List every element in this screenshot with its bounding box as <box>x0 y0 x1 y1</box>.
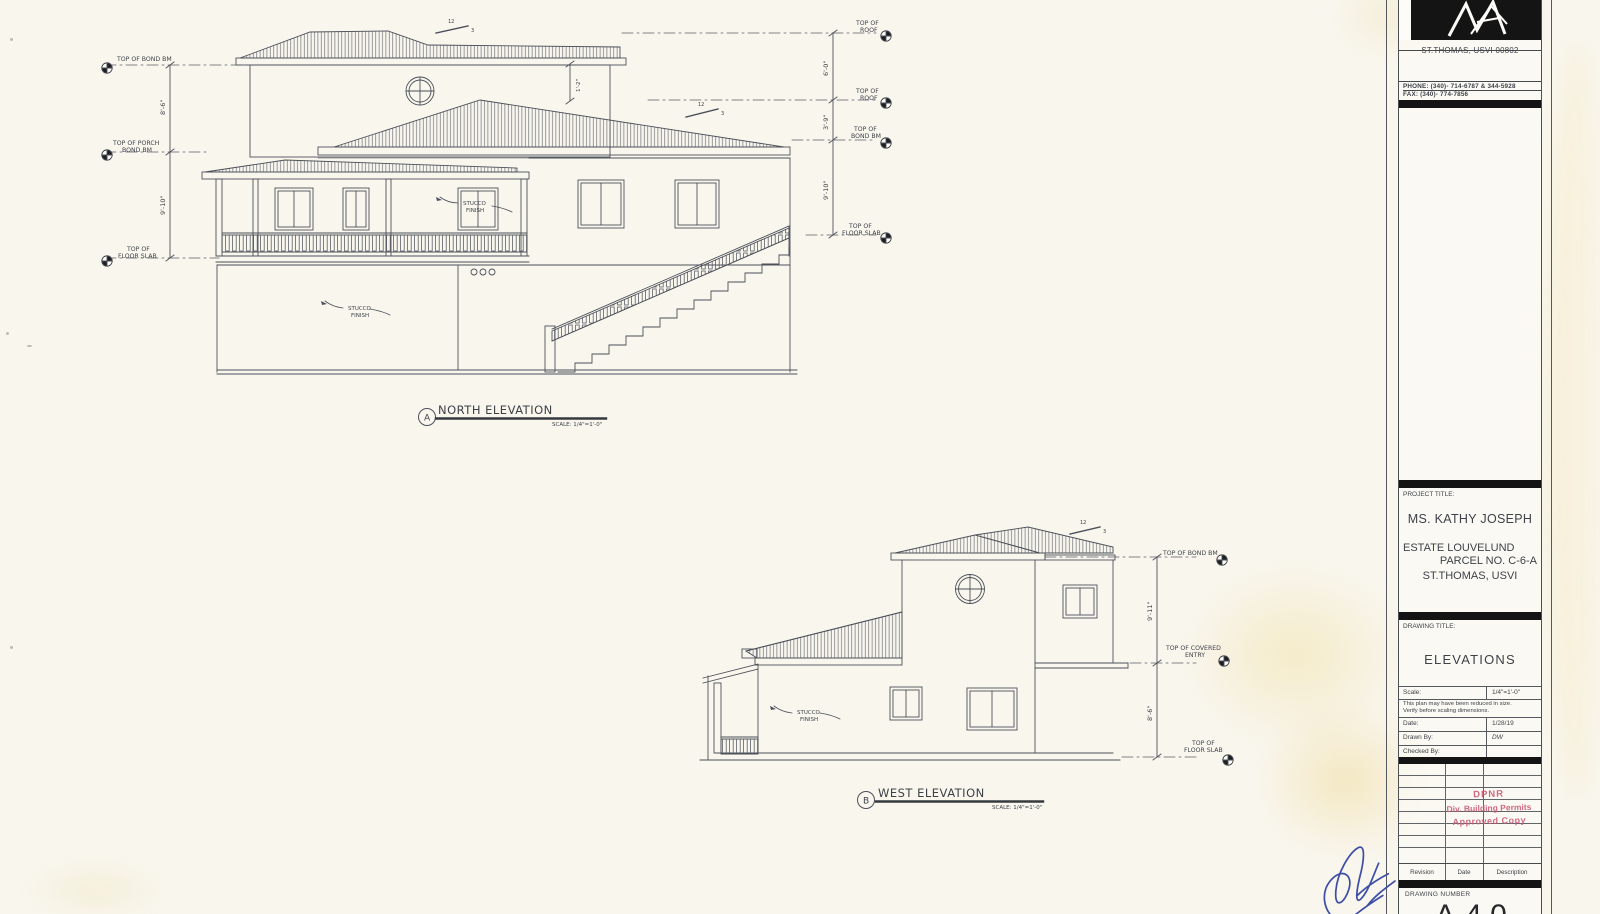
north-upper-roof: 12 3 <box>236 19 626 65</box>
date-label: Date: <box>1399 718 1486 731</box>
slope-rise: 12 <box>698 102 704 108</box>
drawn-by-value: DW <box>1486 732 1541 745</box>
drawn-by-label: Drawn By: <box>1399 732 1486 745</box>
north-main-roof: 12 3 <box>318 100 790 158</box>
west-main-mass <box>700 612 1120 760</box>
date-value: 1/28/19 <box>1486 718 1541 731</box>
svg-text:TOP OF PORCH: TOP OF PORCH <box>112 140 160 147</box>
firm-blank-box <box>1399 51 1541 82</box>
dim-label: 3'-9" <box>822 115 830 130</box>
revision-table: Revision Date Description DPNR Div. Buil… <box>1399 764 1541 880</box>
west-datum-labels: TOP OF BOND BM TOP OF COVERED ENTRY TOP … <box>1162 550 1223 754</box>
west-datum-lines <box>1045 557 1196 757</box>
divider-bar <box>1399 757 1541 764</box>
north-left-dimension: 8'-6" 9'-10" <box>159 62 174 261</box>
divider-bar <box>1399 100 1541 108</box>
window <box>578 180 624 228</box>
title-block: ST.THOMAS, USVI 00802 PHONE: (340)- 714-… <box>1398 0 1542 914</box>
scanned-sheet: 8'-6" 9'-10" 6'-0" 3'-9" 9'-10" <box>0 0 1600 914</box>
window <box>675 180 719 228</box>
revision-row <box>1399 847 1541 859</box>
slope-run: 3 <box>471 28 474 34</box>
client-name: MS. KATHY JOSEPH <box>1403 512 1537 526</box>
ridge-height-dim: 1'-2" <box>566 61 582 104</box>
svg-text:TOP OF: TOP OF <box>855 88 879 95</box>
svg-text:TOP OF COVERED: TOP OF COVERED <box>1165 645 1221 652</box>
svg-text:FINISH: FINISH <box>800 717 818 723</box>
svg-text:TOP OF: TOP OF <box>853 126 877 133</box>
north-title: A NORTH ELEVATION SCALE: 1/4"=1'-0" <box>419 403 607 428</box>
svg-text:TOP OF: TOP OF <box>1191 740 1215 747</box>
svg-text:FLOOR SLAB: FLOOR SLAB <box>118 253 157 260</box>
revision-row <box>1399 835 1541 847</box>
svg-text:FINISH: FINISH <box>351 313 369 319</box>
revision-row <box>1399 764 1541 775</box>
scale-value: 1/4"=1'-0" <box>1486 687 1541 699</box>
elevation-title: WEST ELEVATION <box>878 786 985 800</box>
firm-logo-box <box>1399 0 1541 40</box>
firm-address-row: ST.THOMAS, USVI 00802 <box>1399 40 1541 51</box>
svg-text:STUCCO: STUCCO <box>797 710 821 716</box>
divider-bar <box>1399 612 1541 620</box>
dim-label: 8'-6" <box>159 100 167 115</box>
svg-text:BOND BM: BOND BM <box>851 133 881 140</box>
slope-run: 3 <box>1103 529 1106 535</box>
divider-bar <box>1399 480 1541 488</box>
west-stucco-label: STUCCO FINISH <box>770 706 840 723</box>
svg-text:FINISH: FINISH <box>466 208 484 214</box>
project-location: ST.THOMAS, USVI <box>1403 570 1537 582</box>
drawing-title: ELEVATIONS <box>1403 652 1537 667</box>
firm-contact: PHONE: (340)- 714-6787 & 344-5928 FAX: (… <box>1399 82 1541 100</box>
svg-text:STUCCO: STUCCO <box>463 201 487 207</box>
balustrade <box>222 233 527 252</box>
datum-symbols-north <box>102 31 891 266</box>
window <box>1063 585 1097 618</box>
scale-label: Scale: <box>1399 687 1486 699</box>
project-title-section: PROJECT TITLE: MS. KATHY JOSEPH ESTATE L… <box>1399 488 1541 612</box>
north-lower-level <box>217 265 797 374</box>
reduction-note-1: This plan may have been reduced in size. <box>1403 701 1541 708</box>
architect-info-box <box>1399 108 1541 480</box>
window <box>275 188 313 230</box>
north-porch-roof <box>202 160 529 179</box>
west-elevation-drawing: 9'-11" 8'-6" TOP OF BOND BM TOP OF COVER… <box>700 520 1233 811</box>
svg-text:ROOF: ROOF <box>860 95 878 102</box>
round-window <box>956 575 985 604</box>
svg-text:TOP OF: TOP OF <box>126 246 150 253</box>
parcel-number: PARCEL NO. C-6-A <box>1403 555 1537 567</box>
slope-rise: 12 <box>1080 520 1086 526</box>
dpnr-approval-stamp: DPNR Div. Building Permits Approved Copy <box>1428 786 1549 830</box>
window <box>967 688 1017 730</box>
west-title: B WEST ELEVATION SCALE: 1/4"=1'-0" <box>858 786 1044 811</box>
title-block-outer-border-right <box>1551 0 1552 914</box>
title-block-outer-border-left <box>1386 0 1387 914</box>
window <box>343 188 369 230</box>
dim-label: 9'-10" <box>159 195 167 215</box>
svg-text:STUCCO: STUCCO <box>348 306 372 312</box>
west-porch <box>703 664 758 760</box>
svg-text:ROOF: ROOF <box>860 27 878 34</box>
info-table: Scale: 1/4"=1'-0" This plan may have bee… <box>1399 686 1541 757</box>
estate-name: ESTATE LOUVELUND <box>1403 542 1537 554</box>
firm-logo-monogram <box>1411 0 1541 40</box>
svg-text:FLOOR SLAB: FLOOR SLAB <box>1184 747 1223 754</box>
revision-header-row: Revision Date Description <box>1399 863 1541 880</box>
elevation-drawings: 8'-6" 9'-10" 6'-0" 3'-9" 9'-10" <box>0 0 1390 914</box>
firm-fax: FAX: (340)- 774-7856 <box>1403 91 1541 98</box>
svg-text:ENTRY: ENTRY <box>1185 652 1205 659</box>
svg-text:TOP OF BOND BM: TOP OF BOND BM <box>1162 550 1218 557</box>
dim-label: 6'-0" <box>822 61 830 76</box>
svg-text:TOP OF: TOP OF <box>855 20 879 27</box>
dim-label: 9'-10" <box>822 180 830 200</box>
svg-text:BOND BM: BOND BM <box>122 147 152 154</box>
north-stair <box>545 226 789 372</box>
svg-text:TOP OF: TOP OF <box>848 223 872 230</box>
datum-symbols-west <box>1217 555 1233 765</box>
west-dimension: 9'-11" 8'-6" <box>1146 554 1161 760</box>
vent-circles <box>471 269 495 275</box>
elevation-tag: B <box>863 797 869 807</box>
drawing-title-label: DRAWING TITLE: <box>1403 623 1537 630</box>
north-elevation-drawing: 8'-6" 9'-10" 6'-0" 3'-9" 9'-10" <box>102 19 891 428</box>
svg-text:TOP OF BOND BM: TOP OF BOND BM <box>116 56 172 63</box>
window <box>890 687 922 720</box>
drawing-title-section: DRAWING TITLE: ELEVATIONS <box>1399 620 1541 686</box>
dim-label: 8'-6" <box>1146 706 1154 721</box>
elevation-scale: SCALE: 1/4"=1'-0" <box>992 805 1042 811</box>
balustrade <box>721 737 758 754</box>
slope-rise: 12 <box>448 19 454 25</box>
north-right-dimension: 6'-0" 3'-9" 9'-10" <box>822 30 837 238</box>
north-porch <box>216 179 529 262</box>
elevation-scale: SCALE: 1/4"=1'-0" <box>552 422 602 428</box>
round-window <box>406 77 434 105</box>
elevation-title: NORTH ELEVATION <box>438 403 553 417</box>
slope-run: 3 <box>721 111 724 117</box>
revision-row <box>1399 775 1541 787</box>
revision-header: Description <box>1483 869 1541 876</box>
west-tower-roof: 12 3 <box>891 520 1115 560</box>
north-stucco-labels: STUCCO FINISH STUCCO FINISH <box>321 197 512 319</box>
svg-text:FLOOR SLAB: FLOOR SLAB <box>842 230 881 237</box>
reduction-note-2: Verify before scaling dimensions. <box>1403 708 1541 715</box>
revision-header: Date <box>1445 869 1483 876</box>
elevation-tag: A <box>424 414 431 424</box>
firm-phone: PHONE: (340)- 714-6787 & 344-5928 <box>1403 83 1541 91</box>
dim-label: 1'-2" <box>576 79 582 92</box>
paper-stain <box>1548 40 1600 800</box>
west-tower-wall <box>902 560 1128 753</box>
dim-label: 9'-11" <box>1146 601 1154 621</box>
project-title-label: PROJECT TITLE: <box>1403 491 1537 498</box>
